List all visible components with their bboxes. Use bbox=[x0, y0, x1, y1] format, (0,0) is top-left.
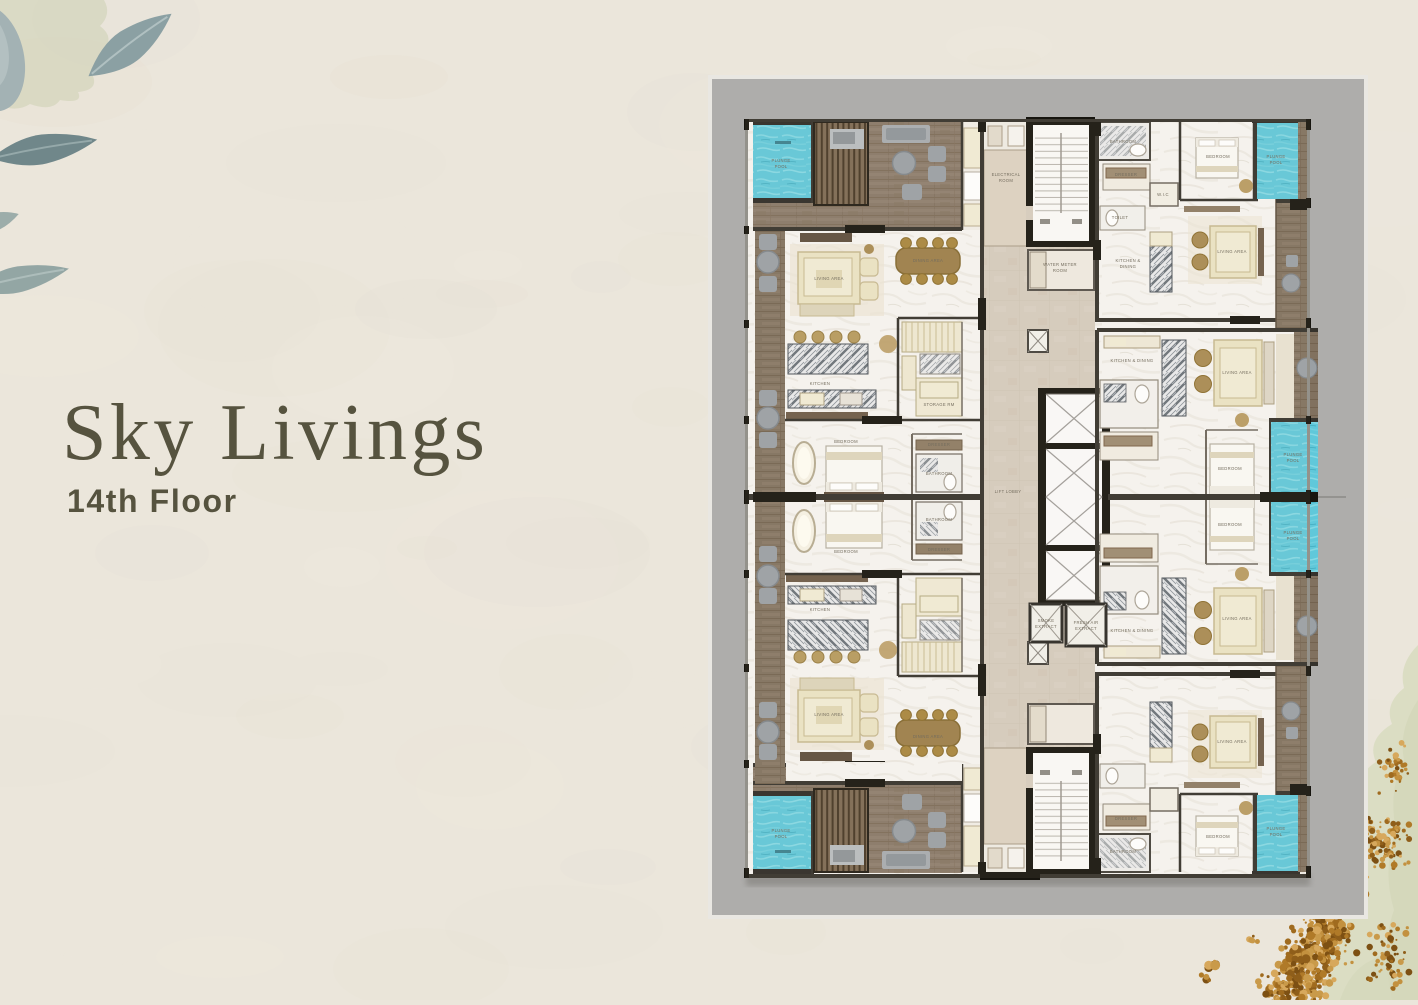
svg-text:BATHROOM: BATHROOM bbox=[1110, 849, 1136, 854]
svg-text:LIVING AREA: LIVING AREA bbox=[1217, 739, 1246, 744]
svg-text:LIVING AREA: LIVING AREA bbox=[814, 276, 843, 281]
svg-text:BEDROOM: BEDROOM bbox=[834, 549, 858, 554]
svg-text:DINING AREA: DINING AREA bbox=[913, 734, 943, 739]
svg-text:KITCHEN & DINING: KITCHEN & DINING bbox=[1111, 358, 1154, 363]
svg-text:PLUNGE: PLUNGE bbox=[771, 828, 790, 833]
svg-text:LIVING AREA: LIVING AREA bbox=[814, 712, 843, 717]
svg-text:WATER METER: WATER METER bbox=[1043, 262, 1077, 267]
svg-text:DRESSER: DRESSER bbox=[928, 442, 950, 447]
svg-text:EXTRACT: EXTRACT bbox=[1075, 626, 1097, 631]
svg-text:DINING AREA: DINING AREA bbox=[913, 258, 943, 263]
svg-text:LIVING AREA: LIVING AREA bbox=[1222, 616, 1251, 621]
svg-text:POOL: POOL bbox=[1270, 160, 1283, 165]
svg-text:DRESSER: DRESSER bbox=[1115, 816, 1137, 821]
svg-text:BEDROOM: BEDROOM bbox=[834, 439, 858, 444]
svg-text:EXTRACT: EXTRACT bbox=[1035, 624, 1057, 629]
svg-text:BEDROOM: BEDROOM bbox=[1206, 834, 1230, 839]
svg-text:ELECTRICAL: ELECTRICAL bbox=[992, 172, 1021, 177]
svg-text:POOL: POOL bbox=[1270, 832, 1283, 837]
svg-text:BEDROOM: BEDROOM bbox=[1206, 154, 1230, 159]
svg-text:KITCHEN: KITCHEN bbox=[810, 381, 830, 386]
svg-text:PLUNGE: PLUNGE bbox=[1266, 154, 1285, 159]
svg-text:KITCHEN &: KITCHEN & bbox=[1115, 258, 1140, 263]
svg-text:BEDROOM: BEDROOM bbox=[1218, 522, 1242, 527]
svg-text:BEDROOM: BEDROOM bbox=[1218, 466, 1242, 471]
svg-text:STORAGE RM: STORAGE RM bbox=[923, 402, 954, 407]
svg-text:FRESH AIR: FRESH AIR bbox=[1074, 620, 1099, 625]
svg-text:POOL: POOL bbox=[775, 834, 788, 839]
svg-text:DRESSER: DRESSER bbox=[1115, 172, 1137, 177]
svg-text:TOILET: TOILET bbox=[1112, 215, 1129, 220]
svg-text:LIFT LOBBY: LIFT LOBBY bbox=[995, 489, 1022, 494]
svg-text:LIVING AREA: LIVING AREA bbox=[1222, 370, 1251, 375]
svg-text:BATHROOM: BATHROOM bbox=[926, 517, 952, 522]
svg-text:ROOM: ROOM bbox=[999, 178, 1013, 183]
svg-text:BATHROOM: BATHROOM bbox=[926, 471, 952, 476]
svg-text:LIVING AREA: LIVING AREA bbox=[1217, 249, 1246, 254]
svg-text:W.I.C: W.I.C bbox=[1157, 192, 1169, 197]
svg-text:SMOKE: SMOKE bbox=[1038, 618, 1055, 623]
svg-text:POOL: POOL bbox=[1287, 536, 1300, 541]
svg-text:KITCHEN: KITCHEN bbox=[810, 607, 830, 612]
svg-text:POOL: POOL bbox=[775, 164, 788, 169]
svg-text:BATHROOM: BATHROOM bbox=[1110, 139, 1136, 144]
svg-text:POOL: POOL bbox=[1287, 458, 1300, 463]
svg-text:DRESSER: DRESSER bbox=[928, 547, 950, 552]
svg-text:PLUNGE: PLUNGE bbox=[771, 158, 790, 163]
svg-text:PLUNGE: PLUNGE bbox=[1266, 826, 1285, 831]
svg-text:PLUNGE: PLUNGE bbox=[1283, 452, 1302, 457]
svg-text:PLUNGE: PLUNGE bbox=[1283, 530, 1302, 535]
svg-text:DINING: DINING bbox=[1120, 264, 1136, 269]
svg-text:ROOM: ROOM bbox=[1053, 268, 1067, 273]
svg-text:KITCHEN & DINING: KITCHEN & DINING bbox=[1111, 628, 1154, 633]
